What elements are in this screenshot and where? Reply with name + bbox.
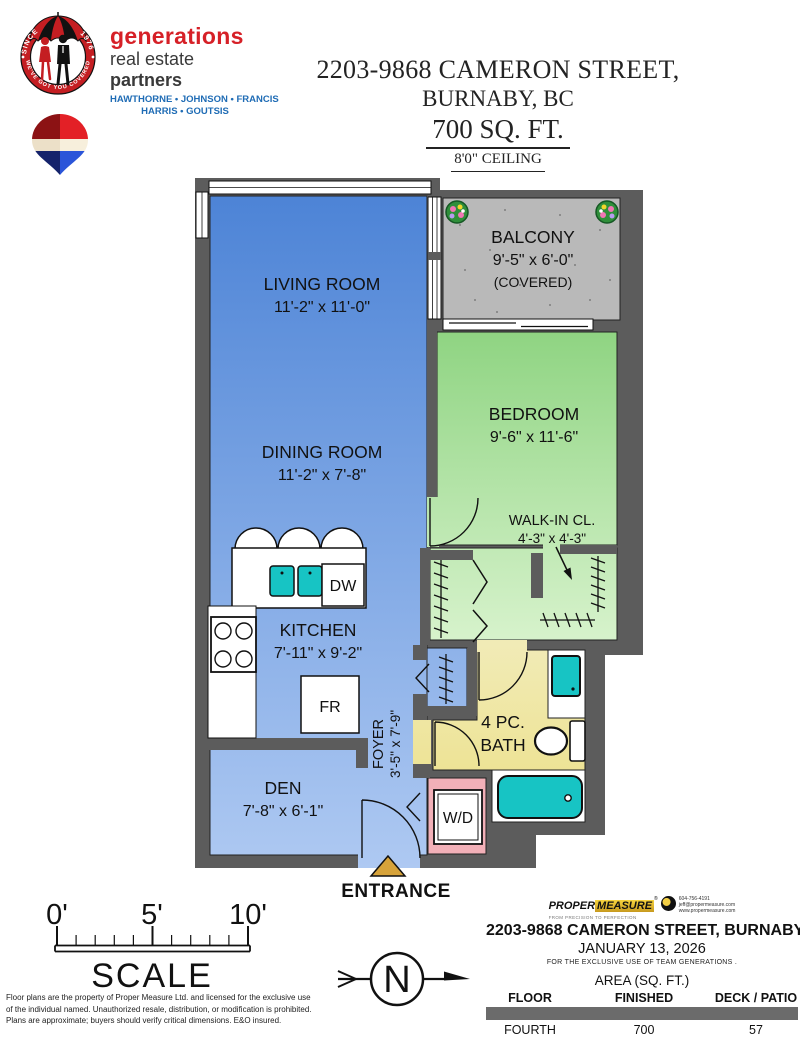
propermeasure-globe-icon	[661, 896, 676, 911]
bathroom-doorway-top	[477, 640, 527, 652]
washer-dryer-label: W/D	[443, 810, 473, 827]
bath-label-line2: BATH	[480, 735, 525, 755]
fridge-label: FR	[319, 699, 340, 716]
scale-label: SCALE	[91, 957, 213, 995]
disclaimer-text: Floor plans are the property of Proper M…	[6, 992, 321, 1027]
compass-north-label: N	[383, 959, 410, 1001]
living-room-label: LIVING ROOM	[264, 274, 381, 294]
living-room-dims: 11'-2" x 11'-0"	[274, 299, 370, 316]
propermeasure-contact: 604-756-4191 jeff@propermeasure.com www.…	[679, 896, 736, 915]
col-deck-patio: DECK / PATIO	[714, 991, 798, 1005]
footer-date: JANUARY 13, 2026	[486, 941, 798, 957]
area-table-columns: FLOOR FINISHED DECK / PATIO	[486, 991, 798, 1005]
bathroom-sink	[552, 656, 580, 696]
north-compass: N	[338, 953, 470, 1005]
propermeasure-word2: MEASURE	[595, 900, 654, 912]
kitchen-label: KITCHEN	[280, 620, 357, 640]
closet-area-floor	[430, 548, 617, 640]
footer-address: 2203-9868 CAMERON STREET, BURNABY	[486, 922, 798, 940]
propermeasure-website: www.propermeasure.com	[679, 908, 736, 914]
entrance-label: ENTRANCE	[341, 881, 451, 902]
bathroom-doorway-left	[413, 720, 431, 764]
footer-exclusive-use: FOR THE EXCLUSIVE USE OF TEAM GENERATION…	[486, 959, 798, 966]
col-floor: FLOOR	[486, 991, 574, 1005]
den-dims: 7'-8" x 6'-1"	[243, 803, 324, 820]
foyer-dims: 3'-5" x 7'-9"	[388, 710, 403, 778]
propermeasure-tagline: FROM PRECISION TO PERFECTION	[549, 915, 658, 920]
propermeasure-word1: PROPER	[549, 900, 595, 912]
bedroom-dims: 9'-6" x 11'-6"	[490, 429, 578, 446]
propermeasure-logo: PROPERMEASURE® FROM PRECISION TO PERFECT…	[486, 896, 798, 920]
dining-room-label: DINING ROOM	[262, 442, 383, 462]
measurement-info-block: PROPERMEASURE® FROM PRECISION TO PERFECT…	[486, 896, 798, 1037]
walkin-dims: 4'-3" x 4'-3"	[518, 531, 586, 546]
kitchen-dims: 7'-11" x 9'-2"	[274, 645, 362, 662]
dishwasher-label: DW	[330, 578, 358, 595]
walkin-label: WALK-IN CL.	[509, 513, 595, 529]
sliding-door-balcony	[443, 319, 593, 330]
foyer-closet-floor	[427, 648, 467, 708]
stove	[211, 617, 256, 672]
planter-icon	[446, 201, 468, 223]
planter-icon	[596, 201, 618, 223]
balcony-label: BALCONY	[491, 227, 575, 247]
balcony-dims: 9'-5" x 6'-0"	[493, 252, 574, 269]
col-finished: FINISHED	[574, 991, 714, 1005]
foyer-label: FOYER	[371, 719, 387, 769]
bath-label-line1: 4 PC.	[481, 712, 525, 732]
bathtub	[498, 776, 582, 818]
bedroom-doorway	[427, 497, 439, 547]
scale-ruler: 0' 5' 10' SCALE	[46, 899, 267, 995]
bedroom-label: BEDROOM	[489, 404, 579, 424]
dining-room-dims: 11'-2" x 7'-8"	[278, 467, 366, 484]
floor-plan: DW FR	[0, 0, 800, 1035]
compass-arrowhead	[444, 972, 470, 981]
balcony-note: (COVERED)	[494, 274, 573, 290]
area-table-header: AREA (SQ. FT.)	[486, 973, 798, 988]
den-label: DEN	[265, 778, 302, 798]
bar-stools	[235, 528, 363, 549]
table-divider-bar	[486, 1007, 798, 1020]
